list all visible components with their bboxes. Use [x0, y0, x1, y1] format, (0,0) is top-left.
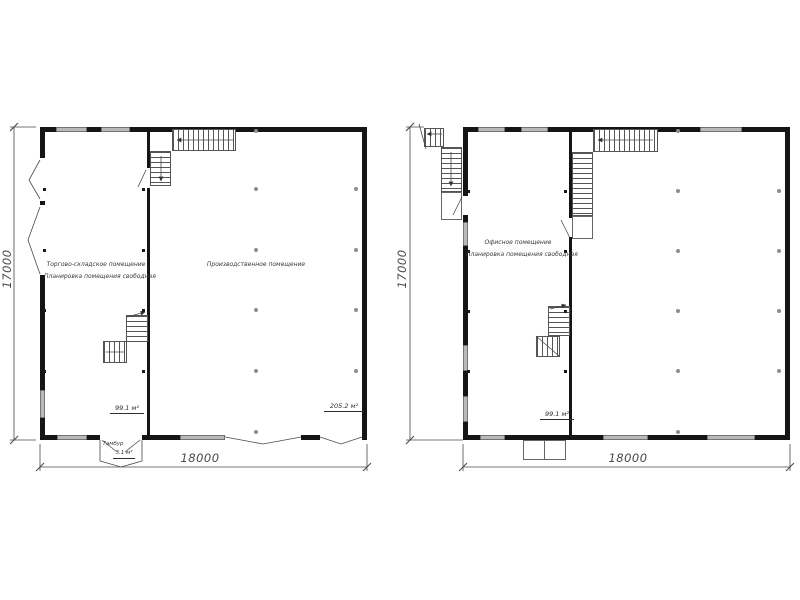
annotation-lines — [0, 0, 800, 600]
column-marker — [254, 308, 258, 312]
column-marker — [676, 249, 680, 253]
vestibule-label: Тамбур — [100, 440, 126, 448]
wall-pilaster — [142, 249, 145, 252]
wall-pilaster — [467, 370, 470, 373]
wall-pilaster — [142, 370, 145, 373]
wall-pilaster — [467, 310, 470, 313]
column-marker — [676, 430, 680, 434]
wall-pilaster — [43, 309, 46, 312]
wall-pilaster — [467, 190, 470, 193]
column-marker — [777, 369, 781, 373]
column-marker — [676, 369, 680, 373]
column-marker — [254, 187, 258, 191]
column-marker — [354, 369, 358, 373]
room-label: Производственное помещение — [204, 261, 308, 269]
column-marker — [676, 309, 680, 313]
column-marker — [254, 430, 258, 434]
wall-pilaster — [142, 309, 145, 312]
wall-pilaster — [43, 370, 46, 373]
column-marker — [676, 129, 680, 133]
wall-pilaster — [564, 310, 567, 313]
area-label: 3.1 м² — [113, 449, 135, 459]
wall-pilaster — [142, 188, 145, 191]
wall-pilaster — [564, 190, 567, 193]
column-marker — [676, 189, 680, 193]
room-label: Офисное помещение — [466, 239, 570, 247]
room-label: Торгово-складское помещение — [44, 261, 148, 269]
column-marker — [777, 309, 781, 313]
column-marker — [354, 187, 358, 191]
area-label: 205.2 м² — [324, 402, 364, 412]
column-marker — [777, 249, 781, 253]
column-marker — [254, 129, 258, 133]
dimension-width: 18000 — [160, 451, 240, 465]
column-marker — [354, 308, 358, 312]
floor-plan-sheet: Торгово-складское помещение Планировка п… — [0, 0, 800, 600]
column-marker — [254, 369, 258, 373]
dimension-height: 17000 — [0, 245, 14, 293]
dimension-height: 17000 — [395, 245, 409, 293]
room-note: Планировка помещения свободная — [44, 273, 148, 281]
wall-pilaster — [564, 370, 567, 373]
wall-pilaster — [43, 188, 46, 191]
wall-pilaster — [43, 249, 46, 252]
area-label: 99.1 м² — [540, 410, 574, 420]
column-marker — [777, 189, 781, 193]
column-marker — [254, 248, 258, 252]
dimension-width: 18000 — [588, 451, 668, 465]
column-marker — [354, 248, 358, 252]
room-note: Планировка помещения свободная — [466, 251, 570, 259]
area-label: 99.1 м² — [110, 404, 144, 414]
